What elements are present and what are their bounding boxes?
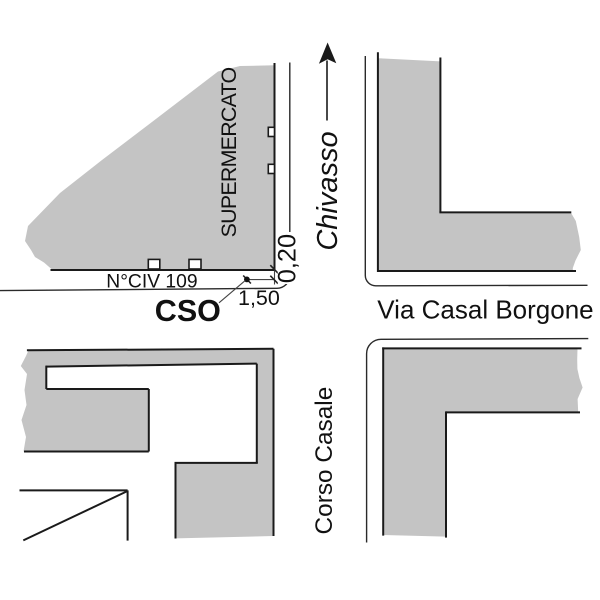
- svg-text:1,50: 1,50: [238, 286, 280, 310]
- svg-text:Corso Casale: Corso Casale: [311, 387, 338, 535]
- svg-text:CSO: CSO: [155, 294, 221, 328]
- svg-text:N°CIV 109: N°CIV 109: [106, 272, 197, 293]
- svg-text:Chivasso: Chivasso: [312, 131, 344, 250]
- svg-text:0,20: 0,20: [273, 234, 301, 283]
- svg-text:Via Casal Borgone: Via Casal Borgone: [377, 294, 593, 324]
- svg-text:SUPERMERCATO: SUPERMERCATO: [217, 68, 241, 238]
